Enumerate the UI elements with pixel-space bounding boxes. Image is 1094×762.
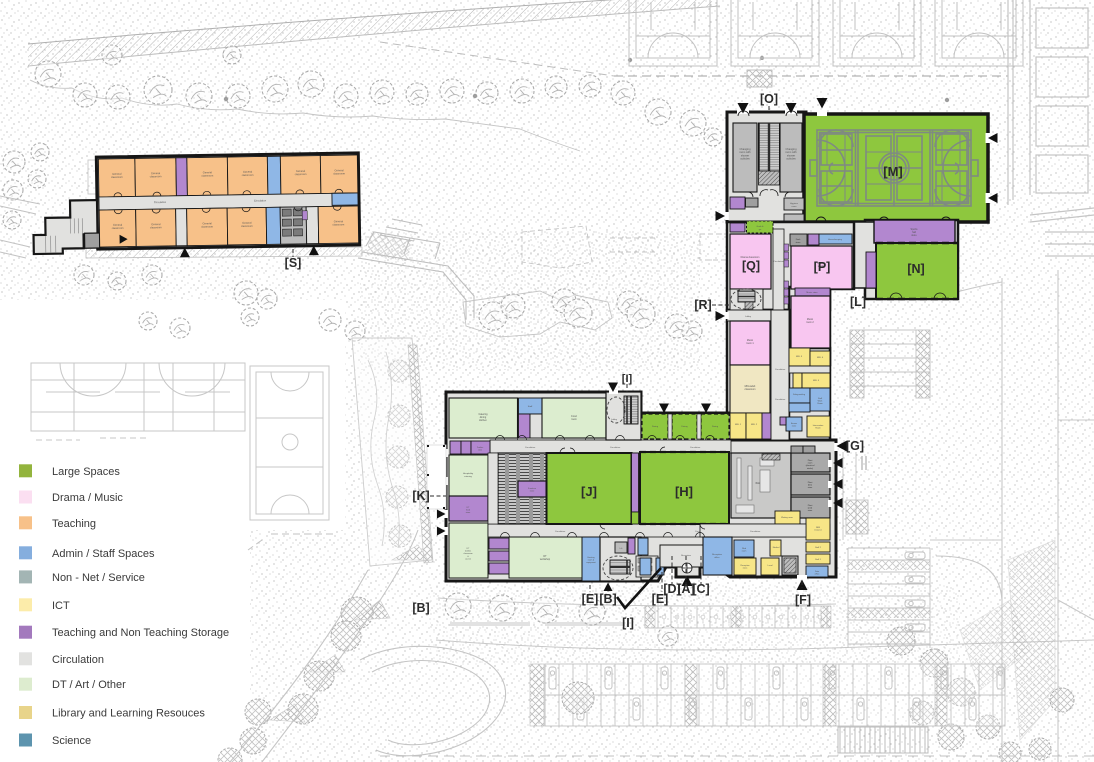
svg-text:[L]: [L] xyxy=(850,295,866,309)
svg-text:Generalclassroom: Generalclassroom xyxy=(242,170,254,177)
svg-text:Circulation: Circulation xyxy=(690,446,701,449)
svg-text:Staff 2: Staff 2 xyxy=(815,546,822,549)
svg-text:Staff: Staff xyxy=(528,405,533,408)
svg-text:Generalclassroom: Generalclassroom xyxy=(241,221,253,228)
svg-text:Generalclassroom: Generalclassroom xyxy=(111,172,123,179)
svg-text:[P]: [P] xyxy=(814,260,831,274)
svg-text:Changingroom withshowercubicle: Changingroom withshowercubicles xyxy=(739,147,751,161)
svg-text:MFL 3: MFL 3 xyxy=(796,356,803,358)
svg-text:Foodroom: Foodroom xyxy=(571,415,577,421)
svg-text:Circulation: Circulation xyxy=(154,200,167,204)
svg-text:Generalclassroom: Generalclassroom xyxy=(150,171,162,178)
svg-text:Lobby: Lobby xyxy=(745,316,752,318)
svg-text:[C]: [C] xyxy=(692,582,709,596)
svg-text:[M]: [M] xyxy=(883,164,903,179)
svg-text:Circulation: Circulation xyxy=(525,446,536,449)
svg-text:Circulation: Circulation xyxy=(555,530,566,533)
svg-text:Dining: Dining xyxy=(652,426,659,428)
svg-text:Changingroom withshowercubicle: Changingroom withshowercubicles xyxy=(785,147,797,161)
svg-text:Library and Learning Resouces: Library and Learning Resouces xyxy=(52,708,205,720)
svg-text:DT / Art / Other: DT / Art / Other xyxy=(52,679,126,691)
svg-text:Non - Net / Service: Non - Net / Service xyxy=(52,572,145,584)
svg-text:MFL 2: MFL 2 xyxy=(751,424,758,426)
svg-text:Drama / Music: Drama / Music xyxy=(52,492,123,504)
svg-text:[I]: [I] xyxy=(622,373,633,385)
svg-text:[B]: [B] xyxy=(599,592,616,606)
svg-text:ICT: ICT xyxy=(52,600,70,612)
svg-text:[J]: [J] xyxy=(581,484,597,499)
svg-text:[F]: [F] xyxy=(795,593,811,607)
svg-text:Circulation: Circulation xyxy=(775,368,786,371)
svg-text:[N]: [N] xyxy=(907,262,924,276)
svg-text:[B]: [B] xyxy=(412,601,429,615)
svg-text:Admin / Staff Spaces: Admin / Staff Spaces xyxy=(52,548,155,560)
svg-text:[H]: [H] xyxy=(675,484,693,499)
svg-text:Safeguarding: Safeguarding xyxy=(793,394,805,396)
svg-text:Generalclassroom: Generalclassroom xyxy=(201,221,213,228)
svg-text:MFL 4: MFL 4 xyxy=(817,357,824,359)
svg-text:Waiting room: Waiting room xyxy=(781,516,793,519)
svg-text:Circulation: Circulation xyxy=(750,530,761,533)
svg-text:Teaching: Teaching xyxy=(52,518,96,530)
svg-text:Medical: Medical xyxy=(773,547,780,549)
svg-text:[E]: [E] xyxy=(582,592,599,606)
svg-text:[G]: [G] xyxy=(846,439,864,453)
svg-text:Local: Local xyxy=(768,565,773,567)
svg-text:Circulation: Circulation xyxy=(610,446,621,449)
svg-text:Lift: Lift xyxy=(620,547,623,550)
svg-text:Generalclassroom: Generalclassroom xyxy=(112,223,124,230)
svg-text:[I]: [I] xyxy=(622,616,634,630)
svg-text:Circulation: Circulation xyxy=(254,198,267,202)
svg-text:MFL 5: MFL 5 xyxy=(813,380,820,382)
svg-text:Circulation: Circulation xyxy=(775,398,786,401)
svg-text:[Q]: [Q] xyxy=(742,259,760,273)
svg-text:Lobby: Lobby xyxy=(611,419,618,421)
svg-text:MFL 1: MFL 1 xyxy=(735,424,742,426)
svg-text:Dining: Dining xyxy=(681,426,688,428)
svg-text:[K]: [K] xyxy=(412,489,429,503)
svg-text:[R]: [R] xyxy=(694,298,711,312)
svg-text:Large Spaces: Large Spaces xyxy=(52,466,120,478)
svg-text:Generalclassroom: Generalclassroom xyxy=(332,219,344,226)
svg-text:Generalclassroom: Generalclassroom xyxy=(150,222,162,229)
svg-text:Science: Science xyxy=(52,735,91,747)
svg-text:Generalclassroom: Generalclassroom xyxy=(295,169,307,176)
svg-text:Examsstore: Examsstore xyxy=(791,423,797,428)
svg-text:[O]: [O] xyxy=(760,92,778,106)
svg-text:Staff 1: Staff 1 xyxy=(815,558,822,561)
svg-text:Generalclassroom: Generalclassroom xyxy=(333,168,345,175)
svg-text:Teaching and Non Teaching Stor: Teaching and Non Teaching Storage xyxy=(52,627,229,639)
svg-text:Music store: Music store xyxy=(806,291,818,294)
svg-text:Generalclassroom: Generalclassroom xyxy=(201,170,213,177)
svg-text:Housekeeping: Housekeeping xyxy=(828,239,843,241)
svg-text:[S]: [S] xyxy=(285,256,302,270)
svg-text:MFL/adultclassroom: MFL/adultclassroom xyxy=(745,385,756,391)
svg-text:Circulation: Circulation xyxy=(773,260,784,263)
svg-text:Circulation: Circulation xyxy=(52,654,104,666)
svg-text:Dining: Dining xyxy=(712,426,719,428)
